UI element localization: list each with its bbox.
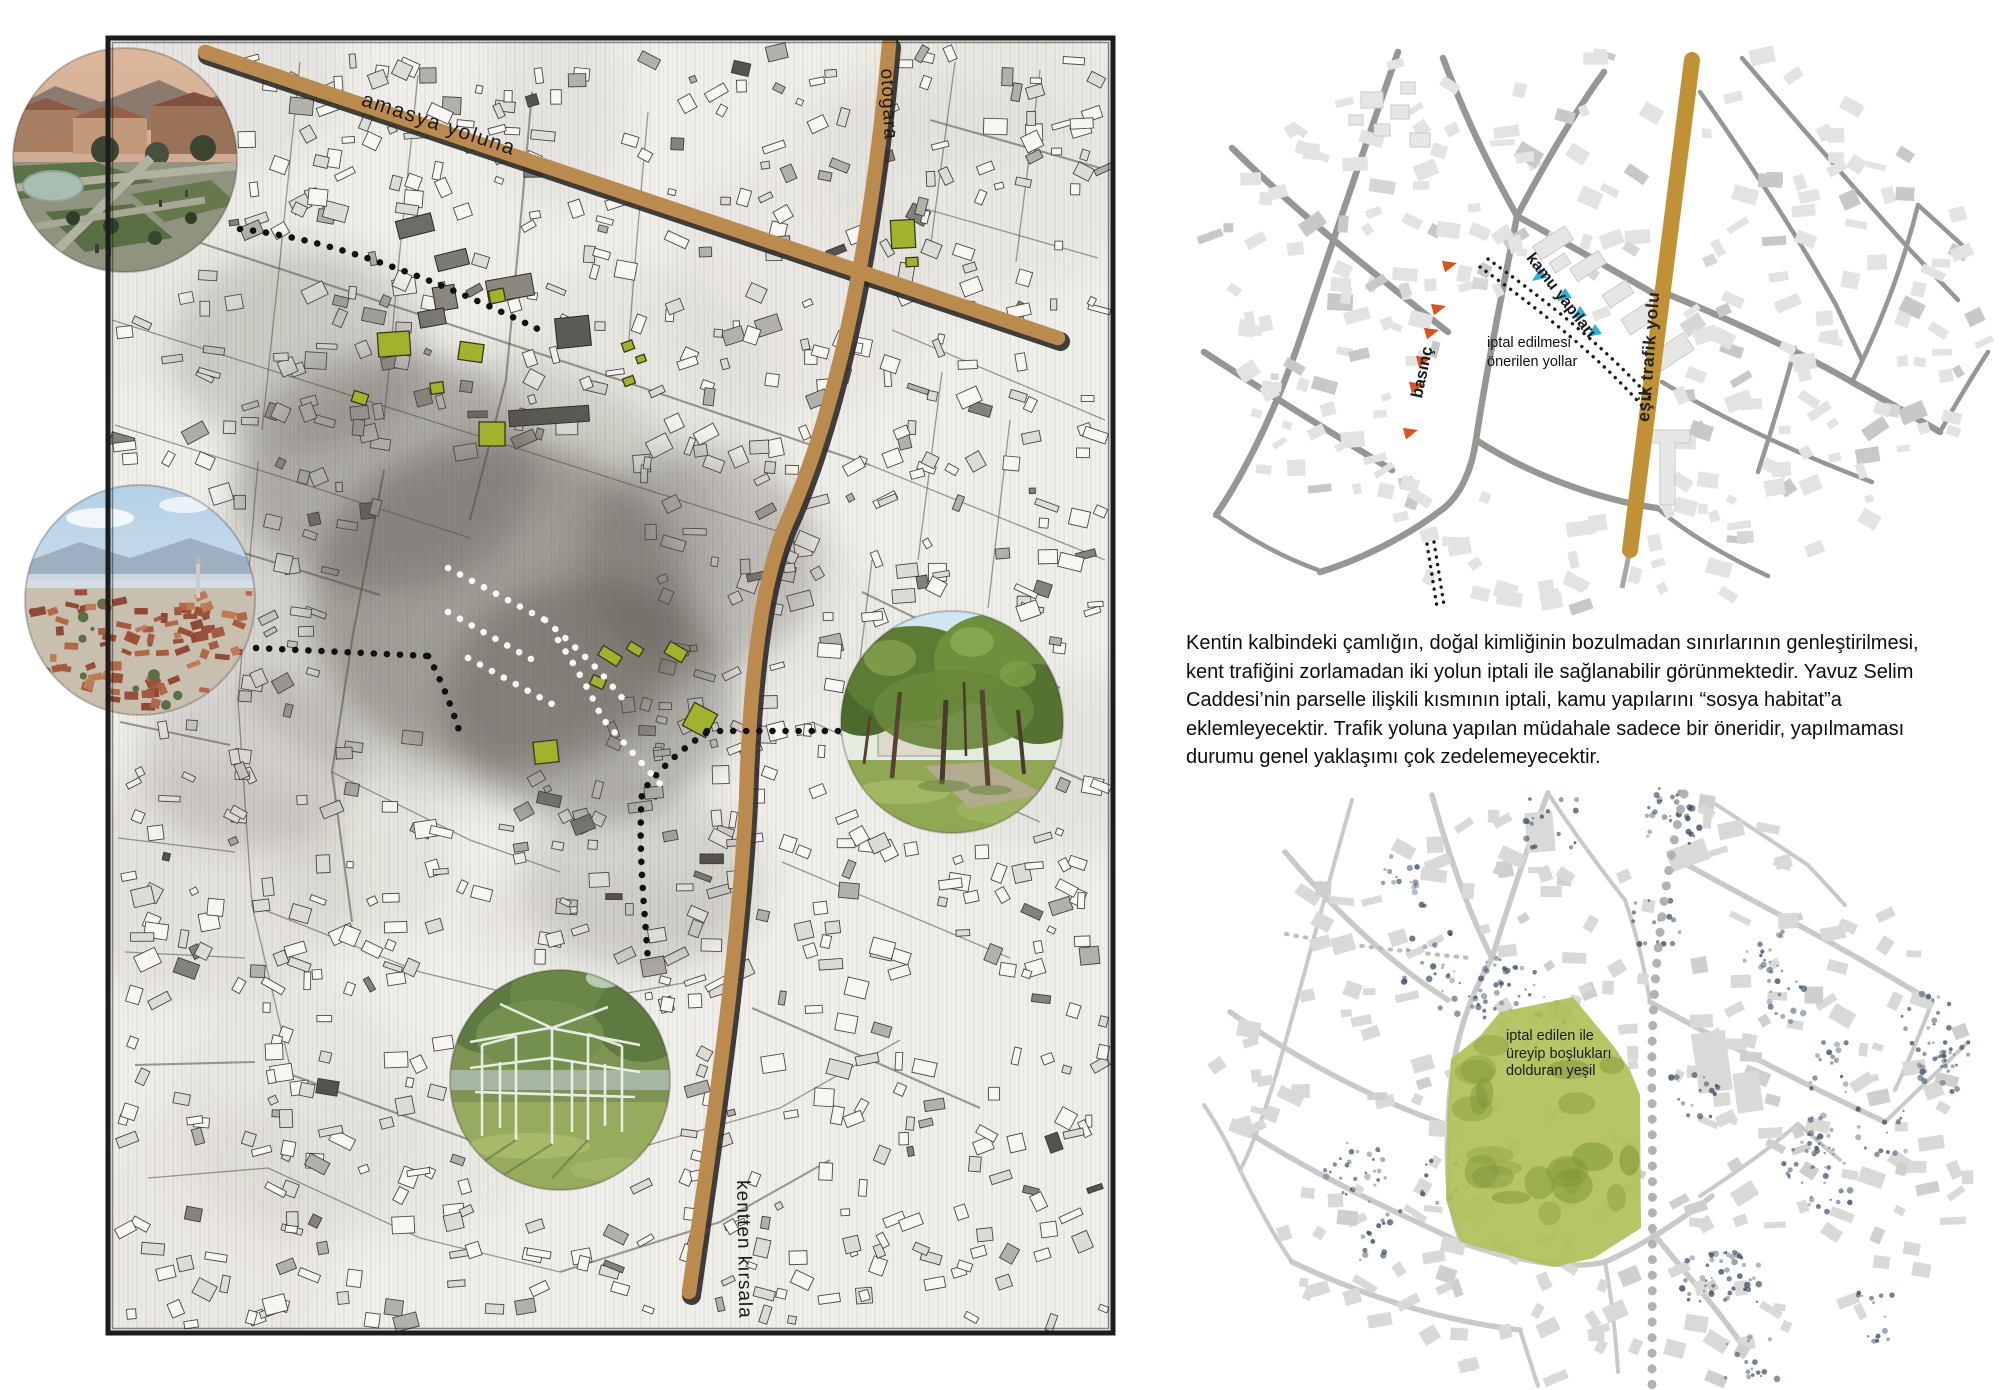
label-green-area: iptal edilen ile üreyip boşlukları doldu… bbox=[1506, 1028, 1612, 1081]
road-label-otogar: otogara bbox=[875, 68, 901, 141]
road-label-rural: kentten kırsala bbox=[731, 1180, 756, 1319]
label-cancelled-roads: iptal edilmesi önerilen yollar bbox=[1487, 334, 1577, 372]
photo-town-panorama bbox=[25, 485, 255, 715]
presentation-board: amasya yoluna otogara kentten kırsala eş… bbox=[0, 0, 2000, 1390]
description-paragraph: Kentin kalbindeki çamlığın, doğal kimliğ… bbox=[1186, 629, 2000, 772]
photo-town-square bbox=[13, 48, 237, 272]
city-map bbox=[13, 0, 1264, 1383]
old-road-dotted-column bbox=[1652, 794, 1684, 1390]
diagram-green-expansion bbox=[1204, 787, 1974, 1390]
